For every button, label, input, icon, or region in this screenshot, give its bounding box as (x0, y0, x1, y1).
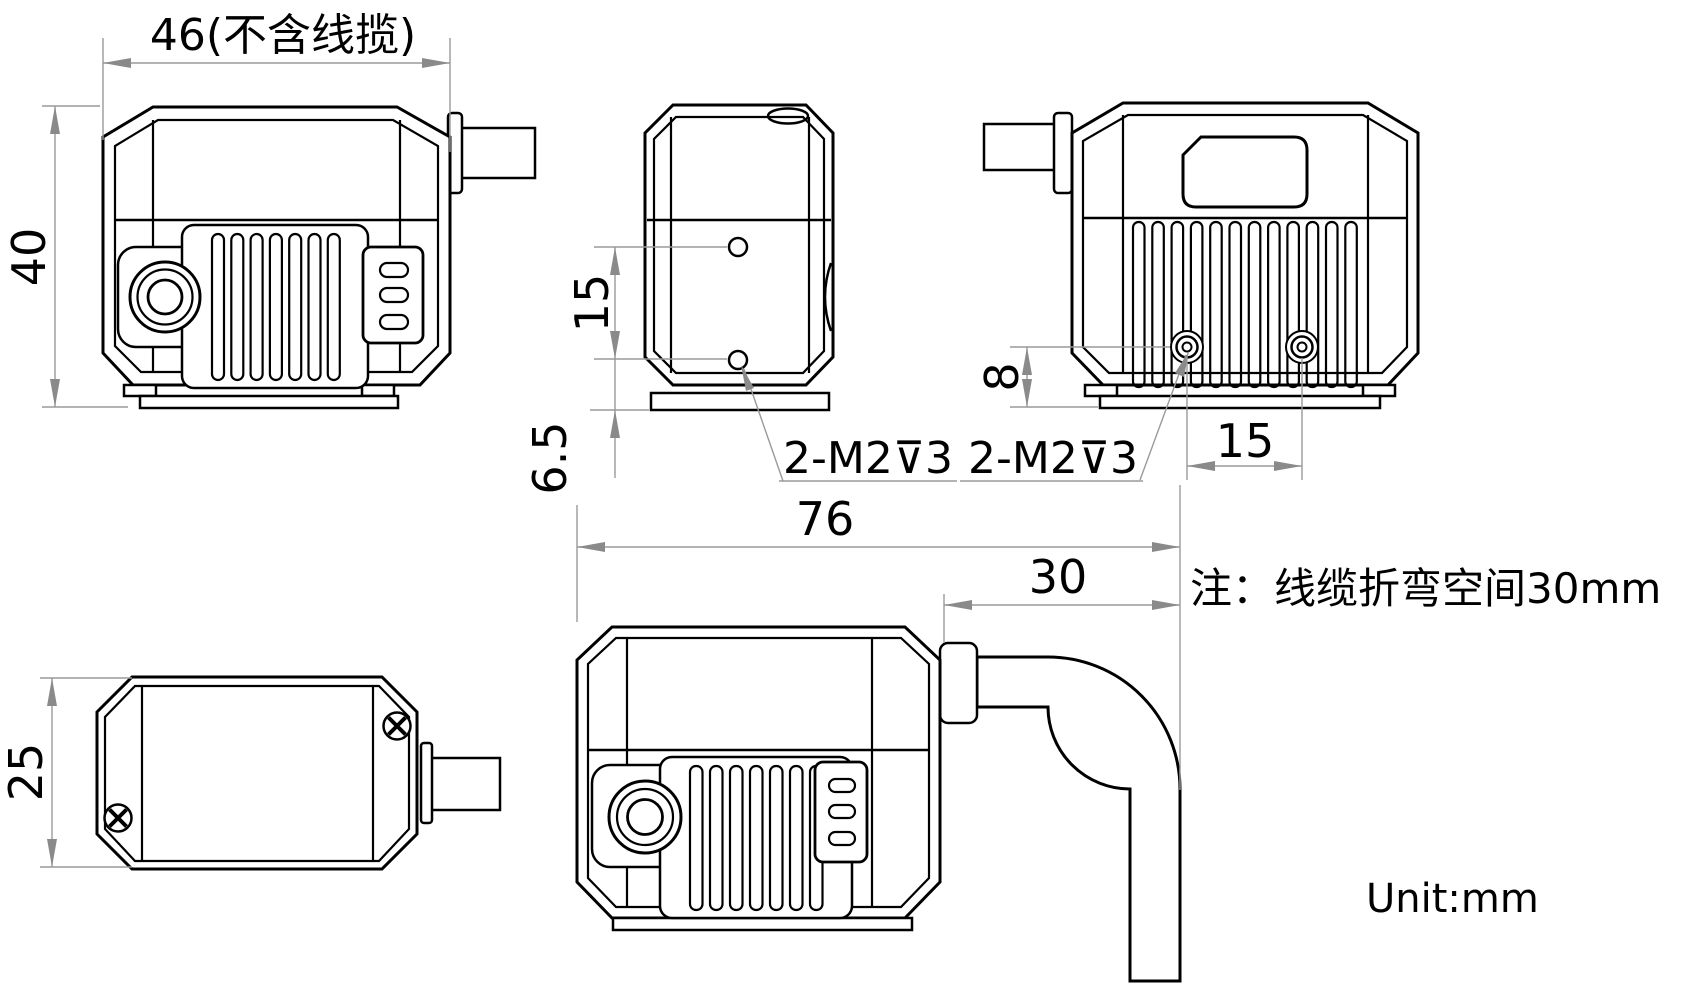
cable-boss (421, 743, 432, 823)
base-plate (140, 396, 398, 408)
thread-label-rear: 2-M2⊽3 (968, 433, 1138, 484)
lens-icon (609, 781, 681, 853)
front-cable-view (577, 627, 1180, 981)
dimension-side-6-5: 6.5 (523, 410, 620, 495)
cable-boss (1054, 113, 1072, 193)
side-view (645, 105, 833, 410)
connector-window (1183, 137, 1307, 207)
dim-label-40: 40 (2, 228, 56, 287)
dimension-drawing: 46(不含线揽) 40 15 6.5 (0, 0, 1682, 995)
mounting-hole-bottom (729, 351, 747, 369)
dim-label-30: 30 (1029, 550, 1088, 604)
thread-label-side: 2-M2⊽3 (783, 433, 953, 484)
cable-stub (431, 758, 500, 810)
base-plate (1100, 396, 1380, 408)
base-plate (613, 918, 912, 930)
foot-left (1085, 385, 1117, 396)
dim-label-6-5: 6.5 (523, 421, 577, 494)
led-panel (363, 247, 423, 343)
body-outline (97, 677, 417, 869)
dimension-bend-30: 30 (944, 550, 1180, 643)
cable-stub (460, 128, 535, 178)
led-panel (815, 762, 867, 862)
foot-right (1363, 385, 1395, 396)
dim-label-76: 76 (796, 492, 855, 546)
cable-boss (940, 643, 977, 723)
top-view (97, 677, 500, 869)
dim-label-46: 46(不含线揽) (150, 10, 416, 61)
bent-cable (977, 657, 1180, 981)
lens-icon (130, 262, 200, 332)
dim-label-rear-15: 15 (1216, 414, 1275, 468)
dim-label-25: 25 (0, 743, 53, 802)
dim-label-8: 8 (975, 362, 1029, 391)
cable-stub (984, 124, 1056, 170)
base-plate (651, 393, 829, 410)
technical-drawing-page: 46(不含线揽) 40 15 6.5 (0, 0, 1682, 995)
unit-label: Unit:mm (1366, 876, 1539, 922)
foot-right (362, 385, 394, 396)
mounting-hole-top (729, 238, 747, 256)
dim-label-side-15: 15 (565, 274, 619, 333)
foot-left (124, 385, 156, 396)
cable-bend-note: 注：线缆折弯空间30mm (1190, 564, 1661, 613)
front-view (103, 107, 535, 408)
rear-view (984, 103, 1418, 408)
